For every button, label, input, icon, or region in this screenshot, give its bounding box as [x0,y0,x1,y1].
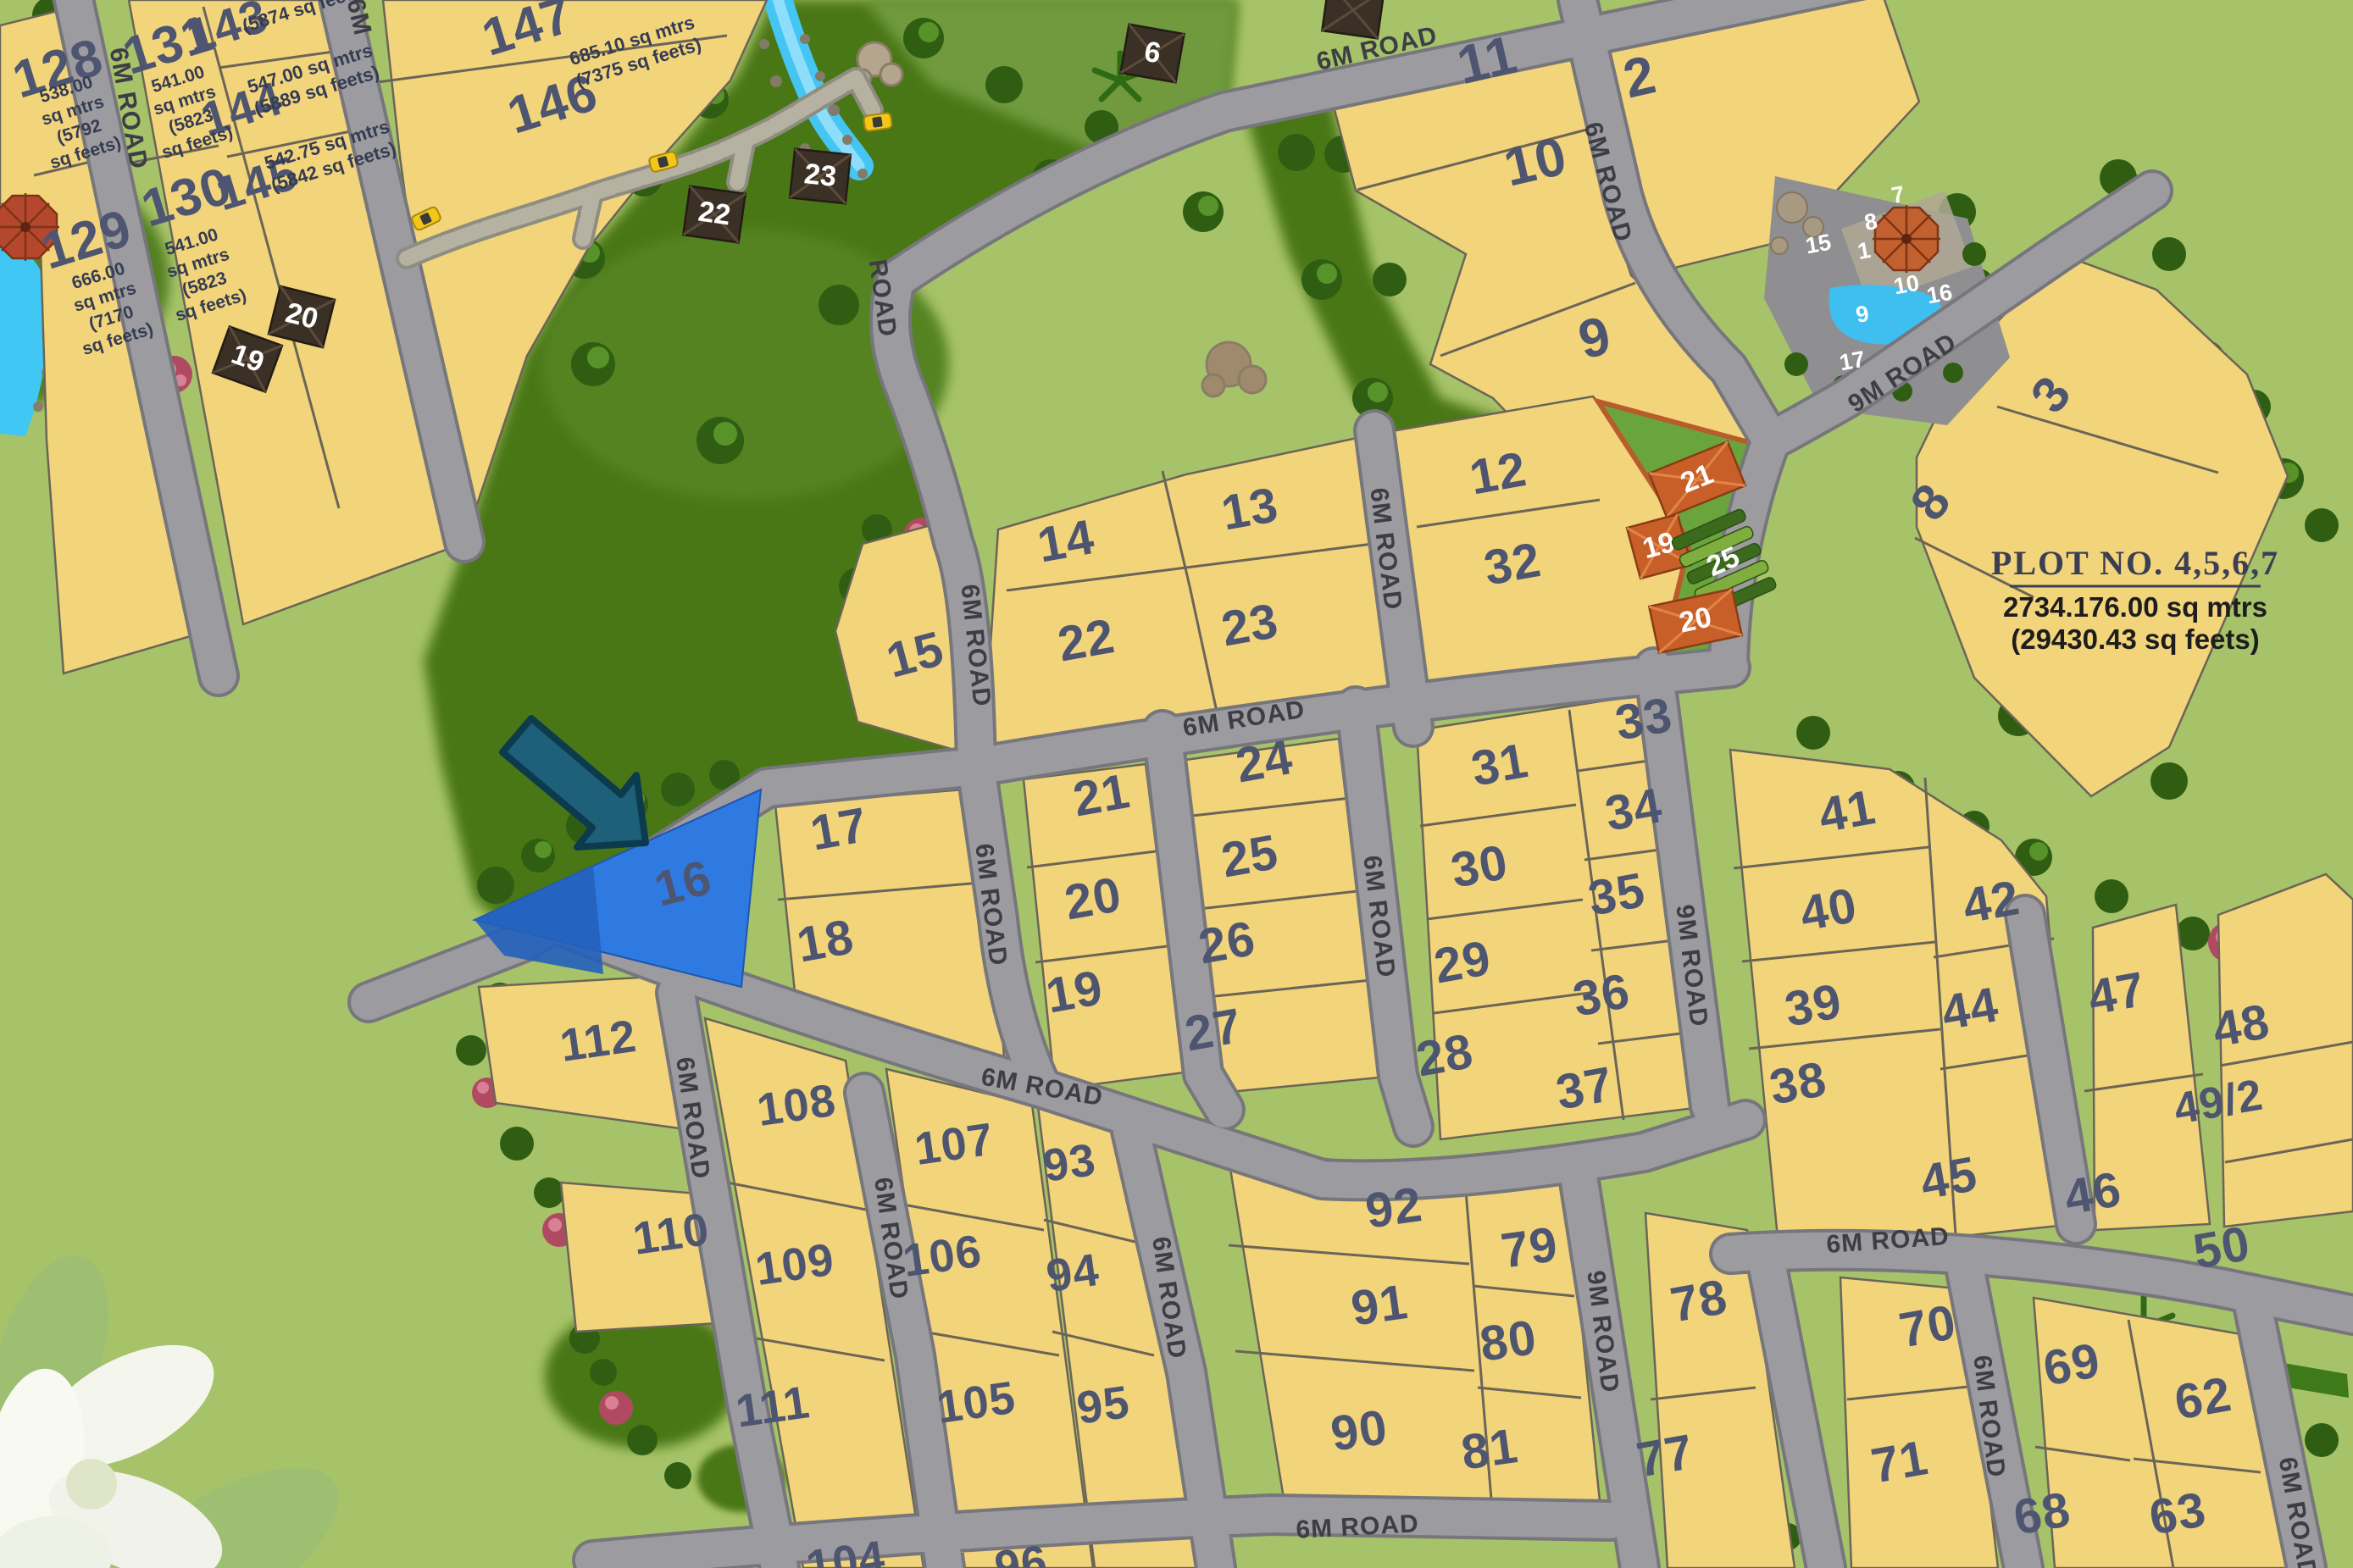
plot-label-71[interactable]: 71 [1867,1430,1933,1494]
plot-label-48[interactable]: 48 [2209,994,2274,1058]
gazebo-icon-23: 23 [790,149,851,204]
plot-label-92[interactable]: 92 [1362,1177,1426,1239]
plot-label-62[interactable]: 62 [2171,1366,2236,1431]
plot-label-39[interactable]: 39 [1781,973,1846,1038]
plot-label-40[interactable]: 40 [1796,878,1862,942]
plot-label-47[interactable]: 47 [2084,961,2150,1026]
plot-label-80[interactable]: 80 [1477,1310,1540,1372]
plot-group-area-feet: (29430.43 sq feets) [2011,623,2260,655]
plot-label-27[interactable]: 27 [1181,998,1246,1062]
plot-label-28[interactable]: 28 [1412,1023,1478,1088]
title-block: PLOT NO. 4,5,6,7 2734.176.00 sq mtrs (29… [1991,544,2279,655]
plot-label-110[interactable]: 110 [630,1204,713,1265]
plot-label-19[interactable]: 19 [1042,960,1107,1024]
plot-label-36[interactable]: 36 [1569,963,1634,1028]
plot-label-23[interactable]: 23 [1218,593,1283,657]
plot-label-34[interactable]: 34 [1601,778,1667,842]
plot-label-69[interactable]: 69 [2039,1333,2105,1397]
plot-label-81[interactable]: 81 [1458,1418,1522,1481]
plot-label-38[interactable]: 38 [1766,1051,1831,1116]
svg-text:22: 22 [696,196,733,232]
plot-label-14[interactable]: 14 [1034,509,1099,573]
svg-text:23: 23 [802,158,838,193]
plot-label-32[interactable]: 32 [1480,532,1546,596]
plot-label-50[interactable]: 50 [2189,1216,2255,1280]
plot-label-111[interactable]: 111 [733,1377,813,1438]
plot-label-91[interactable]: 91 [1348,1274,1412,1337]
amenity-label-16: 16 [1925,280,1955,309]
plot-label-45[interactable]: 45 [1917,1146,1982,1211]
plot-label-105[interactable]: 105 [934,1372,1019,1433]
plot-label-93[interactable]: 93 [1040,1134,1099,1192]
plot-label-30[interactable]: 30 [1447,834,1512,899]
plot-label-63[interactable]: 63 [2145,1482,2211,1546]
plot-label-44[interactable]: 44 [1938,977,2003,1041]
amenity-label-17: 17 [1838,346,1867,376]
gazebo-icon-6: 6 [1120,25,1184,83]
plot-label-77[interactable]: 77 [1633,1424,1698,1488]
plot-label-31[interactable]: 31 [1468,733,1533,797]
plot-label-41[interactable]: 41 [1815,779,1880,844]
plot-label-79[interactable]: 79 [1498,1216,1562,1279]
plot-label-106[interactable]: 106 [900,1226,985,1287]
gazebo-icon-22: 22 [683,186,745,243]
site-plan-map: PLOT NO. 4,5,6,7 2734.176.00 sq mtrs (29… [0,0,2353,1568]
plot-label-68[interactable]: 68 [2010,1482,2075,1546]
plot-label-42[interactable]: 42 [1959,870,2024,934]
plot-label-109[interactable]: 109 [752,1234,838,1295]
plot-label-12[interactable]: 12 [1466,441,1531,506]
plot-label-108[interactable]: 108 [754,1075,840,1136]
plot-label-25[interactable]: 25 [1218,824,1283,889]
plot-label-94[interactable]: 94 [1043,1244,1102,1302]
umbrella-icon [1873,205,1940,273]
plot-label-112[interactable]: 112 [557,1011,640,1072]
svg-text:20: 20 [1676,601,1714,640]
plot-label-37[interactable]: 37 [1552,1056,1618,1121]
plot-label-29[interactable]: 29 [1430,930,1496,995]
plot-label-26[interactable]: 26 [1195,911,1260,975]
plot-label-24[interactable]: 24 [1232,729,1297,794]
plot-label-22[interactable]: 22 [1054,608,1119,673]
plot-label-35[interactable]: 35 [1584,862,1650,927]
plot-group-area-mtrs: 2734.176.00 sq mtrs [2003,591,2267,623]
plot-label-70[interactable]: 70 [1895,1294,1961,1359]
plot-label-78[interactable]: 78 [1667,1269,1732,1333]
plot-label-90[interactable]: 90 [1328,1399,1391,1462]
gazebo-icon [1322,0,1384,38]
plot-label-46[interactable]: 46 [2061,1161,2126,1226]
plot-label-95[interactable]: 95 [1074,1377,1133,1434]
plot-label-18[interactable]: 18 [793,909,858,973]
amenity-label-10: 10 [1892,270,1922,300]
plot-label-20[interactable]: 20 [1061,867,1126,931]
plot-label-21[interactable]: 21 [1069,763,1135,828]
plot-label-107[interactable]: 107 [912,1114,997,1175]
plot-label-17[interactable]: 17 [807,797,872,862]
plot-label-33[interactable]: 33 [1612,687,1677,751]
car-icon [863,113,892,131]
amenity-label-15: 15 [1804,230,1834,259]
plot-label-13[interactable]: 13 [1218,477,1283,541]
plot-group-title: PLOT NO. 4,5,6,7 [1991,544,2279,582]
